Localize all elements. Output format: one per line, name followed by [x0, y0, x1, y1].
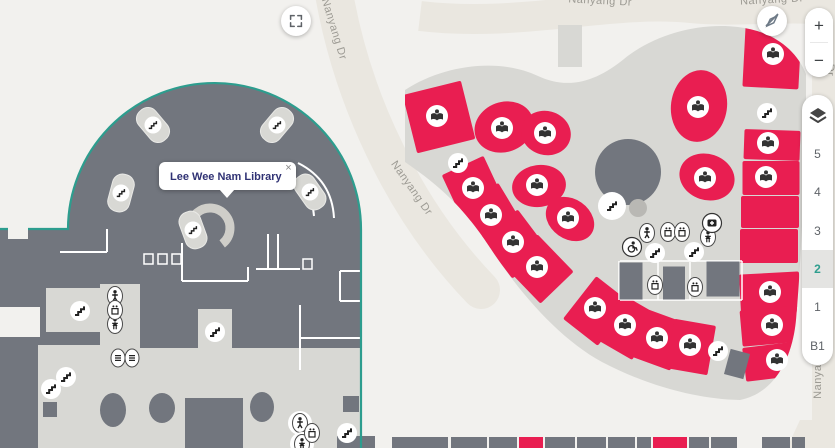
book-icon[interactable] — [694, 167, 716, 189]
stairs-icon[interactable] — [645, 243, 665, 263]
stairs-icon[interactable] — [684, 242, 704, 262]
room-strip[interactable] — [489, 437, 517, 448]
floor-item-1[interactable]: 1 — [802, 288, 833, 326]
book-icon[interactable] — [755, 166, 777, 188]
room-strip[interactable] — [608, 437, 635, 448]
book-icon[interactable] — [614, 314, 636, 336]
floor-item-b1[interactable]: B1 — [802, 327, 833, 365]
restroom-male-icon[interactable] — [640, 224, 655, 243]
book-icon[interactable] — [526, 174, 548, 196]
elevator-icon[interactable] — [675, 223, 690, 242]
elevator-icon[interactable] — [661, 223, 676, 242]
first-aid-icon[interactable] — [703, 214, 722, 233]
room-strip[interactable] — [451, 437, 487, 448]
book-icon[interactable] — [462, 177, 484, 199]
room-strip[interactable] — [653, 437, 687, 448]
book-icon[interactable] — [526, 256, 548, 278]
escalator-icon[interactable] — [125, 349, 139, 367]
poi-tooltip: Lee Wee Nam Library × — [159, 162, 296, 190]
book-icon[interactable] — [646, 327, 668, 349]
map-application: Nanyang DrNanyang DrNanyang DrNanyang Dr… — [0, 0, 835, 448]
book-icon[interactable] — [757, 132, 779, 154]
book-icon[interactable] — [759, 281, 781, 303]
room-shape[interactable] — [740, 229, 798, 263]
stairs-icon[interactable] — [205, 322, 225, 342]
room-strip[interactable] — [392, 437, 448, 448]
room-strip[interactable] — [792, 437, 805, 448]
poi-tooltip-title: Lee Wee Nam Library — [170, 171, 282, 183]
stairs-icon[interactable] — [708, 341, 728, 361]
zoom-controls: + − — [805, 8, 833, 77]
room-strip[interactable] — [689, 437, 709, 448]
book-icon[interactable] — [426, 105, 448, 127]
stairs-icon[interactable] — [757, 103, 777, 123]
book-icon[interactable] — [557, 207, 579, 229]
book-icon[interactable] — [679, 334, 701, 356]
stairs-icon[interactable] — [598, 192, 626, 220]
zoom-in-button[interactable]: + — [805, 8, 833, 42]
floor-item-3[interactable]: 3 — [802, 212, 833, 250]
book-icon[interactable] — [491, 117, 513, 139]
wheelchair-icon[interactable] — [623, 238, 642, 257]
stairs-icon[interactable] — [337, 423, 357, 443]
stairs-icon[interactable] — [41, 379, 61, 399]
floor-item-4[interactable]: 4 — [802, 173, 833, 211]
book-icon[interactable] — [584, 297, 606, 319]
compass-disabled-icon — [761, 10, 783, 32]
map-canvas[interactable]: Nanyang DrNanyang DrNanyang DrNanyang Dr… — [0, 0, 835, 448]
book-icon[interactable] — [534, 122, 556, 144]
fullscreen-button[interactable] — [281, 6, 311, 36]
room-strip[interactable] — [762, 437, 790, 448]
tooltip-pointer — [219, 189, 235, 198]
stairs-icon[interactable] — [70, 301, 90, 321]
book-icon[interactable] — [766, 349, 788, 371]
elevator-icon[interactable] — [108, 301, 123, 320]
layers-icon — [809, 107, 827, 124]
layers-button[interactable] — [802, 95, 833, 135]
room-strip[interactable] — [711, 437, 737, 448]
compass-button[interactable] — [757, 6, 787, 36]
floor-item-2[interactable]: 2 — [802, 250, 833, 288]
elevator-icon[interactable] — [305, 424, 320, 443]
elevator-icon[interactable] — [688, 278, 703, 297]
zoom-out-button[interactable]: − — [805, 43, 833, 77]
floor-list: 54321B1 — [802, 135, 833, 365]
floor-selector: 54321B1 — [802, 95, 833, 365]
stairs-icon[interactable] — [448, 153, 468, 173]
book-icon[interactable] — [480, 204, 502, 226]
book-icon[interactable] — [502, 231, 524, 253]
book-icon[interactable] — [687, 96, 709, 118]
room-strip[interactable] — [519, 437, 543, 448]
floor-item-5[interactable]: 5 — [802, 135, 833, 173]
room-strip[interactable] — [545, 437, 575, 448]
book-icon[interactable] — [762, 43, 784, 65]
room-strip[interactable] — [637, 437, 651, 448]
expand-icon — [287, 12, 305, 30]
room-shape[interactable] — [741, 196, 799, 228]
escalator-icon[interactable] — [111, 349, 125, 367]
book-icon[interactable] — [761, 314, 783, 336]
room-strip[interactable] — [577, 437, 606, 448]
close-icon[interactable]: × — [285, 162, 291, 174]
elevator-icon[interactable] — [648, 276, 663, 295]
